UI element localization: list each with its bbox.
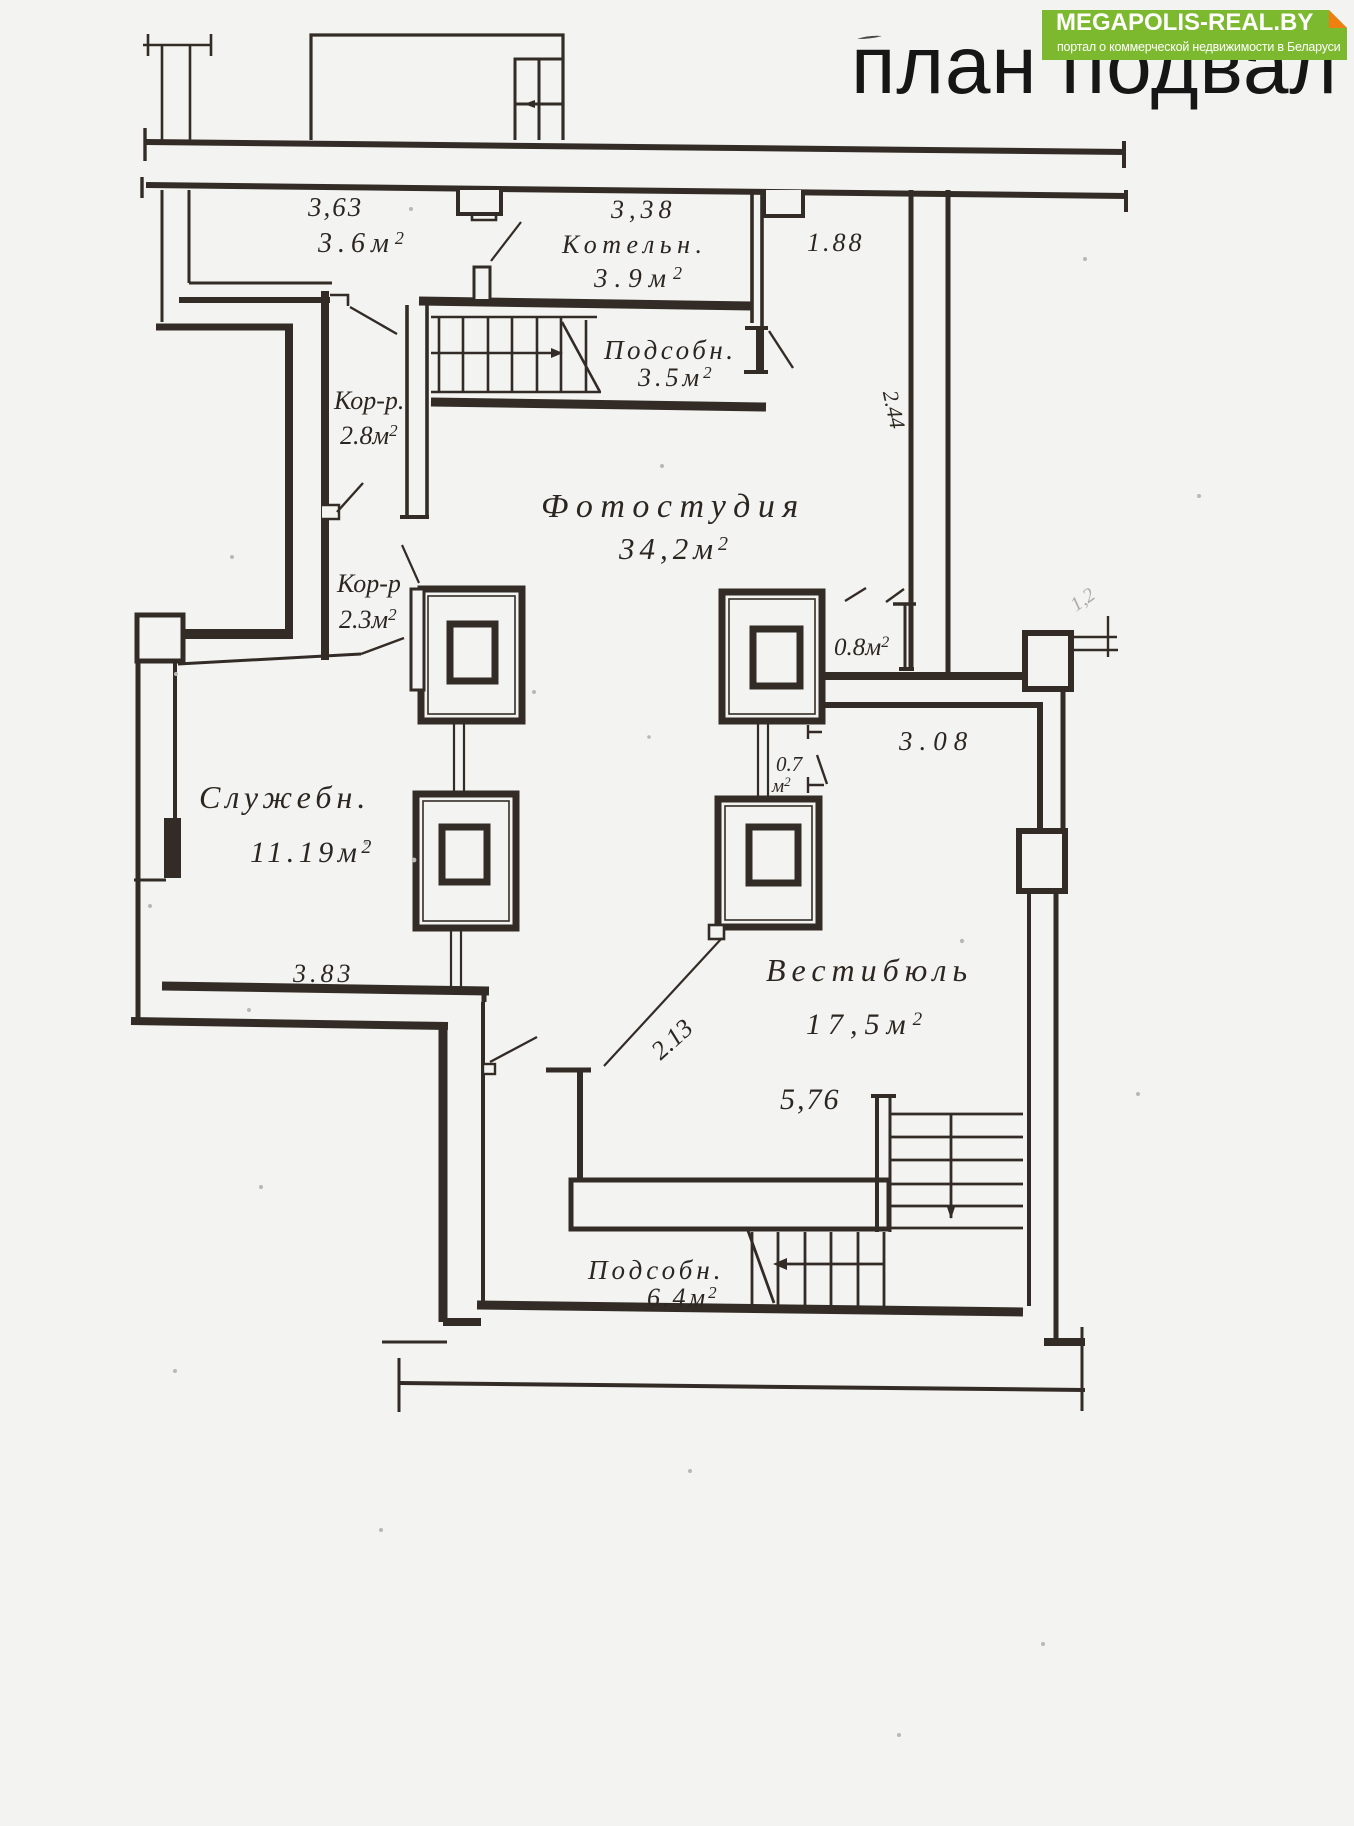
svg-text:3.9м2: 3.9м2 bbox=[593, 263, 689, 293]
svg-text:2.8м2: 2.8м2 bbox=[340, 421, 398, 450]
svg-text:34,2м2: 34,2м2 bbox=[618, 531, 733, 566]
svg-text:3.5м2: 3.5м2 bbox=[637, 363, 716, 392]
svg-text:0.8м2: 0.8м2 bbox=[834, 634, 889, 661]
svg-text:Вестибюль: Вестибюль bbox=[766, 952, 973, 988]
svg-text:3.6м2: 3.6м2 bbox=[317, 228, 410, 259]
svg-text:1,2: 1,2 bbox=[1066, 584, 1099, 616]
svg-text:2.13: 2.13 bbox=[645, 1013, 698, 1065]
svg-text:Кор-р.: Кор-р. bbox=[333, 386, 404, 415]
svg-text:Служебн.: Служебн. bbox=[199, 779, 370, 815]
svg-text:2.44: 2.44 bbox=[878, 388, 910, 431]
svg-text:1.88: 1.88 bbox=[807, 228, 865, 257]
svg-text:Котельн.: Котельн. bbox=[561, 230, 708, 259]
svg-text:Подсобн.: Подсобн. bbox=[603, 335, 736, 365]
svg-text:Подсобн.: Подсобн. bbox=[587, 1255, 724, 1285]
svg-text:11.19м2: 11.19м2 bbox=[250, 836, 376, 869]
svg-text:3.08: 3.08 bbox=[898, 726, 974, 756]
svg-text:Фотостудия: Фотостудия bbox=[541, 488, 806, 525]
svg-text:3.83: 3.83 bbox=[292, 959, 355, 988]
svg-text:0.7: 0.7 bbox=[776, 752, 804, 776]
svg-text:м2: м2 bbox=[771, 774, 791, 797]
svg-text:3,63: 3,63 bbox=[307, 192, 363, 222]
svg-text:17,5м2: 17,5м2 bbox=[806, 1008, 929, 1041]
svg-text:Кор-р: Кор-р bbox=[336, 569, 401, 598]
svg-text:2.3м2: 2.3м2 bbox=[339, 605, 397, 634]
svg-text:3,38: 3,38 bbox=[610, 195, 677, 224]
svg-text:5,76: 5,76 bbox=[780, 1083, 841, 1116]
